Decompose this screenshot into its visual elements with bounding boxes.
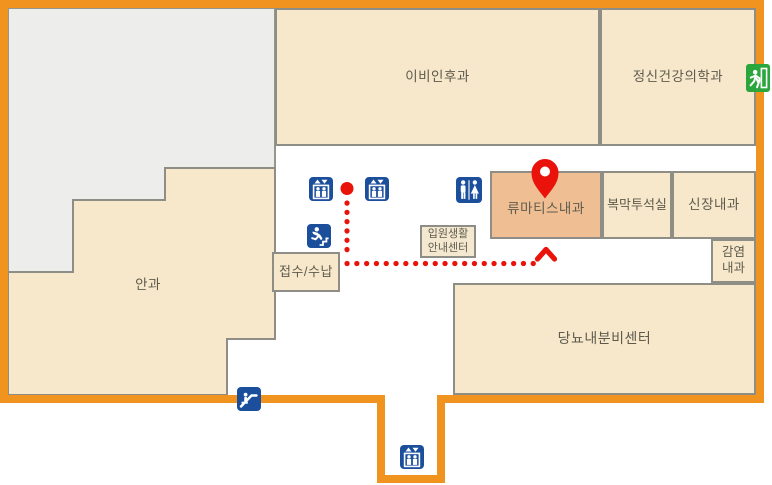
room-ophthalmology-label: 안과 [98,267,198,299]
emergency-stairs-icon [307,224,331,248]
room-peritoneal-dialysis: 복막투석실 [602,171,672,239]
emergency-exit-icon [746,64,770,92]
room-label: 정신건강의학과 [633,69,723,86]
room-label-line1: 감염 [722,245,745,261]
inpatient-info-box: 입원생활 안내센터 [420,225,476,258]
room-label: 이비인후과 [405,69,470,86]
outline-top [0,0,764,8]
reception-label: 접수/수납 [279,264,333,280]
outline-right [756,0,764,403]
room-label: 복막투석실 [607,197,667,213]
outline-lobby-left-wall [377,395,385,483]
restroom-icon [456,177,482,203]
room-psychiatry: 정신건강의학과 [600,8,756,146]
hospital-floor-map: 이비인후과 정신건강의학과 류마티스내과 복막투석실 신장내과 감염 내과 당뇨… [0,0,772,485]
inpatient-info-line1: 입원생활 [428,228,468,242]
room-label: 신장내과 [688,197,740,214]
room-label: 류마티스내과 [507,201,585,218]
room-nephrology: 신장내과 [672,171,756,239]
outline-lobby-bottom [377,475,445,483]
elevator-icon [400,445,424,469]
room-label-line2: 내과 [722,261,745,277]
outline-left [0,0,8,403]
room-label: 당뇨내분비센터 [558,330,652,348]
outline-bottom-left [0,395,385,403]
room-ent: 이비인후과 [275,8,600,146]
elevator-icon [365,177,389,201]
elevator-icon [309,177,333,201]
escalator-icon [237,387,261,411]
room-diabetes-endocrine: 당뇨내분비센터 [453,283,756,395]
room-infectious-disease: 감염 내과 [711,239,756,283]
outline-bottom-right [437,395,764,403]
inpatient-info-line2: 안내센터 [428,242,468,256]
outline-lobby-right-wall [437,395,445,483]
room-rheumatology: 류마티스내과 [490,171,602,239]
reception-box: 접수/수납 [272,252,340,292]
